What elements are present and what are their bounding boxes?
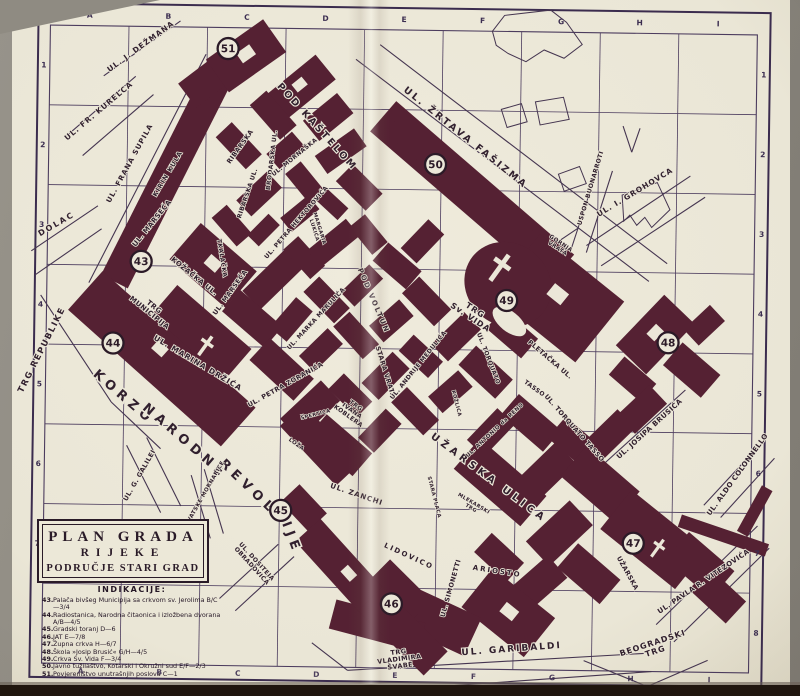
grid-letter-top: D (322, 14, 328, 23)
grid-letter-bottom: G (549, 673, 555, 682)
grid-number-right: 7 (754, 549, 759, 558)
poi-marker-51: 51 (217, 38, 238, 59)
grid-letter-top: F (480, 16, 485, 25)
grid-letter-bottom: H (627, 674, 633, 683)
indication-item: 44.Radiostanica, Narodna čitaonica i izl… (42, 612, 222, 627)
poi-marker-number: 50 (428, 159, 443, 171)
indication-number: 51. (42, 671, 53, 678)
poi-marker-number: 46 (384, 598, 399, 610)
poi-marker-45: 45 (270, 500, 291, 521)
poi-marker-47: 47 (623, 533, 644, 554)
map-title-box: PLAN GRADA RIJEKE PODRUČJE STARI GRAD (37, 519, 209, 583)
indication-number: 44. (42, 612, 53, 627)
poi-marker-49: 49 (496, 290, 517, 311)
grid-letter-top: B (165, 12, 171, 21)
grid-letter-bottom: C (235, 669, 241, 678)
indication-number: 43. (42, 597, 53, 612)
poi-marker-number: 44 (106, 337, 121, 349)
grid-number-right: 2 (760, 150, 765, 159)
photo-edge-shadow (0, 682, 800, 685)
indication-text: Povjereništvo unutrašnjih poslova C—1 (53, 671, 222, 678)
poi-marker-number: 45 (273, 505, 288, 517)
grid-number-right: 3 (759, 230, 764, 239)
poi-marker-number: 49 (499, 295, 514, 307)
photo-bottom-strip (0, 685, 800, 696)
indication-item: 43.Palača bivšeg Municipija sa crkvom sv… (42, 597, 222, 612)
grid-number-right: 4 (758, 310, 763, 319)
grid-number-right: 5 (757, 389, 762, 398)
grid-number-right: 1 (761, 70, 766, 79)
poi-marker-46: 46 (381, 593, 402, 614)
scanned-map-photo: UL. J. DEŽMANAUL. FR. KURELCAUL. FRANA S… (0, 0, 800, 696)
grid-number-left: 3 (39, 220, 44, 229)
indications-list: 43.Palača bivšeg Municipija sa crkvom sv… (42, 597, 222, 678)
grid-number-left: 5 (37, 379, 42, 388)
indications-heading: INDIKACIJE: (57, 585, 207, 594)
poi-marker-number: 47 (626, 538, 641, 550)
grid-number-right: 8 (753, 629, 758, 638)
poi-marker-48: 48 (657, 332, 678, 353)
poi-marker-44: 44 (102, 332, 123, 353)
map-title-line2: RIJEKE (39, 547, 207, 559)
grid-letter-bottom: F (471, 672, 476, 681)
grid-number-left: 2 (40, 140, 45, 149)
poi-marker-number: 48 (661, 337, 676, 349)
poi-marker-50: 50 (425, 154, 446, 175)
grid-number-left: 1 (41, 60, 46, 69)
indication-item: 51.Povjereništvo unutrašnjih poslova C—1 (42, 671, 222, 678)
map-title-line1: PLAN GRADA (39, 529, 207, 546)
grid-number-left: 6 (36, 459, 41, 468)
grid-number-left: 4 (38, 300, 43, 309)
indication-text: Radiostanica, Narodna čitaonica i izložb… (53, 612, 222, 627)
grid-letter-top: G (558, 17, 564, 26)
poi-marker-number: 51 (221, 43, 236, 55)
grid-letter-top: C (244, 13, 250, 22)
grid-letter-top: H (636, 18, 642, 27)
map-indications: INDIKACIJE: 43.Palača bivšeg Municipija … (42, 585, 222, 678)
grid-letter-bottom: D (313, 670, 319, 679)
poi-marker-number: 43 (134, 256, 149, 268)
grid-number-right: 6 (756, 469, 761, 478)
poi-marker-43: 43 (131, 251, 152, 272)
map-title-line3: PODRUČJE STARI GRAD (39, 563, 207, 574)
grid-letter-top: I (717, 19, 720, 28)
indication-text: Palača bivšeg Municipija sa crkvom sv. J… (53, 597, 222, 612)
grid-letter-top: E (401, 15, 406, 24)
grid-letter-bottom: E (392, 671, 397, 680)
